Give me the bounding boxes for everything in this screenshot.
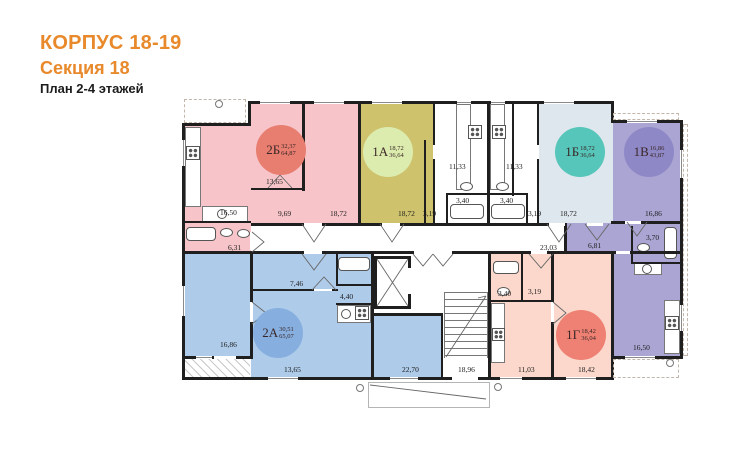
stove-icon	[492, 328, 505, 341]
wall	[490, 300, 553, 302]
door-opening	[587, 223, 603, 226]
bathtub-icon	[491, 204, 525, 219]
bathtub-icon	[186, 227, 216, 241]
wall	[564, 223, 567, 253]
bathtub-icon	[664, 227, 677, 259]
window	[196, 356, 212, 359]
apartment-code: 1Г	[566, 327, 580, 343]
area-label: 9,69	[278, 209, 291, 218]
area-label: 11,33	[506, 162, 523, 171]
wall	[374, 256, 377, 309]
door-opening	[549, 223, 565, 226]
window	[182, 140, 185, 166]
wall	[487, 101, 490, 225]
bathtub-icon	[338, 257, 370, 271]
wall	[336, 253, 338, 285]
wall	[446, 193, 488, 195]
sink-icon	[341, 309, 351, 319]
wall	[488, 193, 528, 195]
bathtub-icon	[493, 261, 519, 274]
total-area: 43,87	[650, 152, 665, 160]
area-label: 7,46	[290, 279, 303, 288]
area-label: 11,33	[449, 162, 466, 171]
door-opening	[314, 289, 332, 291]
wall	[336, 284, 374, 286]
door-opening	[537, 145, 539, 159]
washbasin-icon	[220, 228, 233, 237]
toilet-icon	[237, 229, 250, 238]
plan-subtitle: План 2-4 этажей	[40, 80, 181, 98]
door-opening	[304, 223, 322, 226]
wall	[521, 253, 523, 302]
wall	[374, 306, 411, 309]
area-label: 13,65	[284, 365, 301, 374]
floor-plan-page: КОРПУС 18-19 Секция 18 План 2-4 этажей	[0, 0, 740, 472]
door-opening	[414, 251, 452, 254]
column	[494, 383, 502, 391]
area-label: 18,72	[560, 209, 577, 218]
wall	[441, 313, 443, 380]
wall	[611, 221, 683, 224]
living-area: 30,51	[279, 326, 294, 334]
living-area: 18,42	[581, 328, 596, 336]
apartment-2a-region[interactable]	[184, 253, 251, 356]
stove-icon	[186, 146, 200, 160]
area-label: 18,42	[578, 365, 595, 374]
window	[457, 101, 471, 104]
door-opening	[250, 302, 253, 322]
total-area: 36,04	[581, 335, 596, 343]
stove-icon	[665, 316, 679, 330]
wall	[248, 101, 251, 126]
area-label: 18,72	[330, 209, 347, 218]
door-opening	[382, 223, 400, 226]
window	[182, 286, 185, 316]
apartment-code: 2А	[262, 325, 278, 341]
area-label: 16,50	[633, 343, 650, 352]
wall	[358, 101, 361, 225]
kitchen-counter	[490, 104, 505, 190]
living-area: 18,72	[580, 145, 595, 153]
bathtub-icon	[450, 204, 484, 219]
window	[390, 377, 418, 380]
window	[491, 101, 505, 104]
wall	[251, 223, 565, 226]
apartment-badge-2a[interactable]: 2А 30,5165,07	[253, 308, 303, 358]
column	[215, 100, 223, 108]
apartment-badge-1v[interactable]: 1В 16,8643,87	[624, 127, 674, 177]
section-title: Секция 18	[40, 56, 181, 80]
apartment-badge-1b[interactable]: 1Б 18,7236,64	[555, 127, 605, 177]
area-label: 6,31	[228, 243, 241, 252]
wall	[537, 101, 539, 225]
window	[566, 377, 596, 380]
entrance-opening	[452, 377, 478, 380]
column	[666, 359, 674, 367]
area-label: 13,65	[266, 177, 283, 186]
entrance-canopy	[368, 382, 490, 408]
wall	[182, 123, 251, 126]
door-opening	[625, 221, 641, 224]
window	[627, 120, 657, 123]
washbasin-icon	[460, 182, 473, 191]
area-label: 16,86	[645, 209, 662, 218]
apartment-code: 1А	[372, 144, 388, 160]
door-opening	[616, 251, 630, 254]
total-area: 65,07	[279, 333, 294, 341]
window	[500, 377, 522, 380]
stove-icon	[355, 306, 369, 320]
balcony-outline	[683, 124, 688, 356]
staircase	[444, 292, 488, 358]
window	[260, 101, 290, 104]
living-area: 32,37	[281, 143, 296, 151]
wall	[488, 253, 491, 380]
title-block: КОРПУС 18-19 Секция 18 План 2-4 этажей	[40, 30, 181, 98]
washbasin-icon	[496, 182, 509, 191]
kitchen-counter	[185, 127, 201, 207]
area-label: 3,40	[500, 196, 513, 205]
area-label: 3,40	[456, 196, 469, 205]
wall	[182, 221, 251, 223]
building-title: КОРПУС 18-19	[40, 30, 181, 56]
kitchen-counter	[456, 104, 471, 190]
apartment-badge-1g[interactable]: 1Г 18,4236,04	[556, 310, 606, 360]
area-label: 3,40	[498, 289, 511, 298]
stove-icon	[468, 125, 482, 139]
apartment-badge-1a[interactable]: 1А 18,7236,64	[363, 127, 413, 177]
area-label: 11,03	[518, 365, 535, 374]
total-area: 36,64	[389, 152, 404, 160]
area-label: 6,81	[588, 241, 601, 250]
area-label: 18,96	[458, 365, 475, 374]
area-label: 3,19	[528, 287, 541, 296]
area-label: 23,03	[540, 243, 557, 252]
door-opening	[304, 251, 322, 254]
apartment-code: 1Б	[565, 144, 579, 160]
apartment-code: 2Б	[266, 142, 280, 158]
wall	[446, 193, 448, 225]
area-label: 3,19	[528, 209, 541, 218]
window	[372, 101, 402, 104]
window	[544, 101, 574, 104]
door-opening	[408, 268, 411, 294]
area-label: 16,86	[220, 340, 237, 349]
wall	[512, 101, 514, 196]
wall	[433, 101, 435, 225]
wall	[336, 303, 374, 305]
apartment-badge-2b[interactable]: 2Б 32,3764,87	[256, 125, 306, 175]
area-label: 18,72	[398, 209, 415, 218]
total-area: 64,87	[281, 150, 296, 158]
door-opening	[250, 232, 253, 250]
area-label: 4,40	[340, 292, 353, 301]
wall	[371, 313, 443, 316]
balcony-outline	[613, 113, 679, 120]
living-area: 16,86	[650, 145, 665, 153]
wall	[631, 262, 683, 264]
balcony-hatch	[184, 359, 250, 377]
stove-icon	[492, 125, 506, 139]
wall	[374, 256, 411, 259]
living-area: 18,72	[389, 145, 404, 153]
column	[356, 384, 364, 392]
area-label: 3,70	[646, 233, 659, 242]
total-area: 36,64	[580, 152, 595, 160]
apartment-code: 1В	[634, 144, 649, 160]
door-opening	[551, 302, 554, 322]
wall	[631, 226, 633, 264]
balcony-door-opening	[214, 356, 236, 359]
window	[314, 101, 344, 104]
area-label: 22,70	[402, 365, 419, 374]
door-opening	[433, 145, 435, 159]
window	[268, 377, 298, 380]
area-label: 3,19	[423, 209, 436, 218]
sink-icon	[642, 264, 652, 274]
wall	[251, 188, 305, 190]
area-label: 16,50	[220, 208, 237, 217]
